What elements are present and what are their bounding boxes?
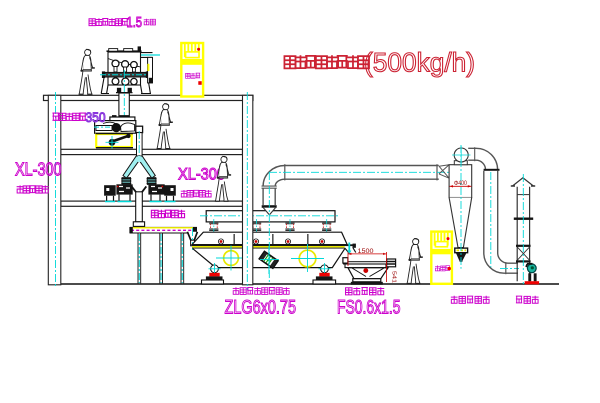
svg-text:XL-300: XL-300 (15, 159, 62, 180)
svg-text:1.5: 1.5 (127, 14, 143, 31)
svg-text:FS0.6x1.5: FS0.6x1.5 (337, 298, 401, 319)
svg-text:541: 541 (390, 271, 396, 283)
svg-text:1500: 1500 (358, 248, 375, 255)
svg-text:(500kg/h): (500kg/h) (364, 48, 475, 78)
svg-text:ZLG6x0.75: ZLG6x0.75 (225, 298, 297, 319)
svg-text:350: 350 (86, 110, 106, 125)
